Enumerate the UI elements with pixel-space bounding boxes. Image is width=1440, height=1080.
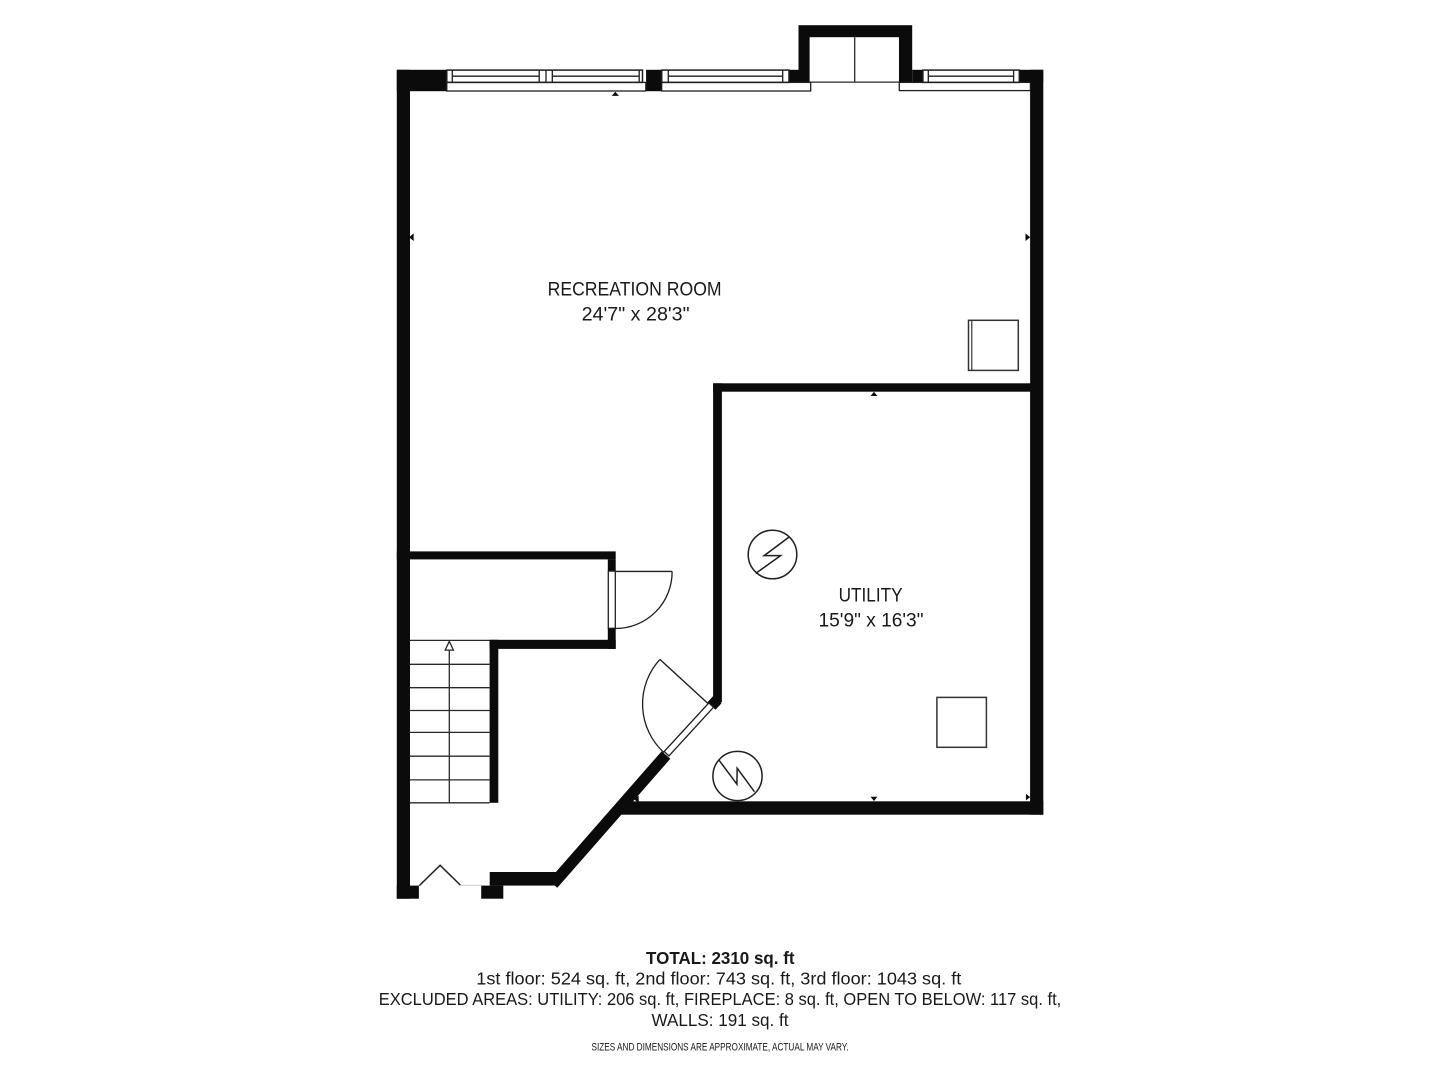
svg-text:TOTAL: 2310 sq. ft: TOTAL: 2310 sq. ft — [646, 948, 795, 968]
svg-text:15'9" x 16'3": 15'9" x 16'3" — [819, 610, 924, 631]
svg-text:1st floor: 524 sq. ft, 2nd flo: 1st floor: 524 sq. ft, 2nd floor: 743 sq… — [476, 969, 961, 989]
svg-text:WALLS: 191 sq. ft: WALLS: 191 sq. ft — [652, 1010, 789, 1030]
svg-text:24'7" x 28'3": 24'7" x 28'3" — [582, 304, 690, 325]
svg-text:EXCLUDED AREAS: UTILITY: 206 s: EXCLUDED AREAS: UTILITY: 206 sq. ft, FIR… — [379, 989, 1062, 1009]
svg-text:RECREATION ROOM: RECREATION ROOM — [548, 280, 722, 301]
svg-text:UTILITY: UTILITY — [839, 585, 903, 606]
svg-text:SIZES AND DIMENSIONS ARE APPRO: SIZES AND DIMENSIONS ARE APPROXIMATE, AC… — [592, 1041, 849, 1053]
